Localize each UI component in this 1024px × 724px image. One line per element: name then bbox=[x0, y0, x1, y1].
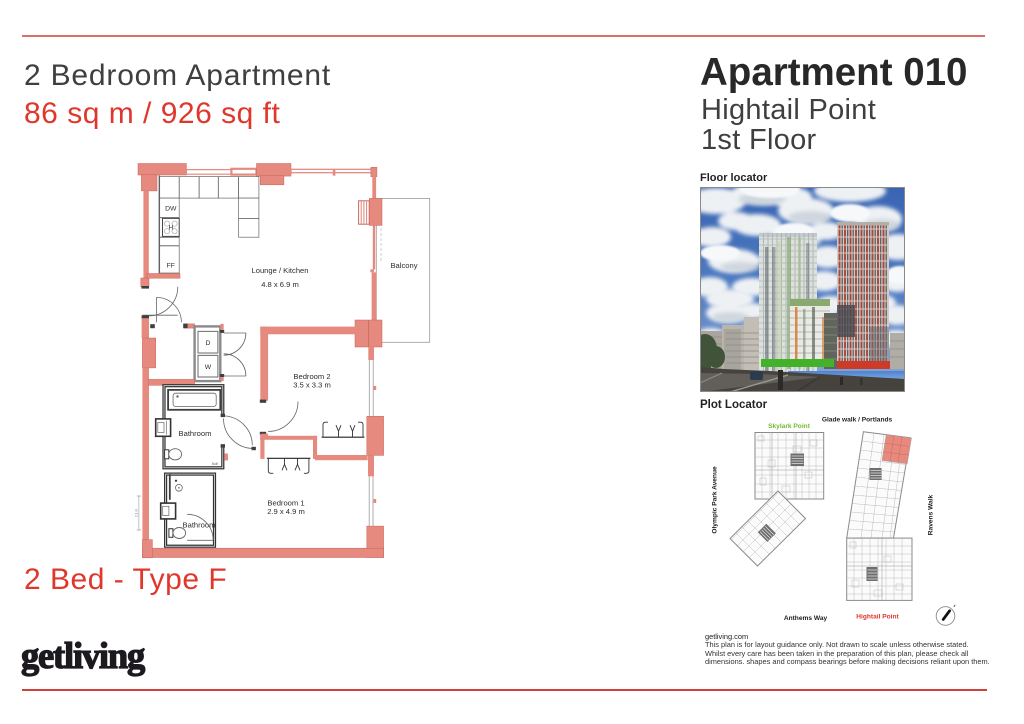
svg-text:W: W bbox=[205, 364, 212, 371]
svg-text:Balcony: Balcony bbox=[390, 261, 417, 270]
svg-text:FF: FF bbox=[167, 263, 175, 270]
svg-text:2.9 x 4.9 m: 2.9 x 4.9 m bbox=[267, 507, 305, 516]
svg-text:D: D bbox=[206, 340, 211, 347]
svg-text:Hightail Point: Hightail Point bbox=[856, 614, 899, 621]
svg-text:4.8 x 6.9 m: 4.8 x 6.9 m bbox=[261, 280, 299, 289]
svg-text:Bathroom: Bathroom bbox=[179, 429, 212, 438]
svg-text:Olympic Park Avenue: Olympic Park Avenue bbox=[712, 466, 719, 534]
svg-text:2.1 m: 2.1 m bbox=[135, 509, 139, 517]
svg-text:Skylark Point: Skylark Point bbox=[768, 423, 811, 430]
svg-text:Lounge / Kitchen: Lounge / Kitchen bbox=[252, 266, 309, 275]
svg-text:DW: DW bbox=[165, 206, 177, 213]
svg-text:3.5 x 3.3 m: 3.5 x 3.3 m bbox=[293, 380, 331, 389]
svg-text:Anthems Way: Anthems Way bbox=[784, 615, 828, 622]
svg-text:H: H bbox=[169, 225, 174, 232]
svg-text:Glade walk / Portlands: Glade walk / Portlands bbox=[822, 417, 893, 424]
svg-text:Ravens Walk: Ravens Walk bbox=[928, 494, 935, 535]
svg-text:Built: Built bbox=[212, 462, 218, 466]
